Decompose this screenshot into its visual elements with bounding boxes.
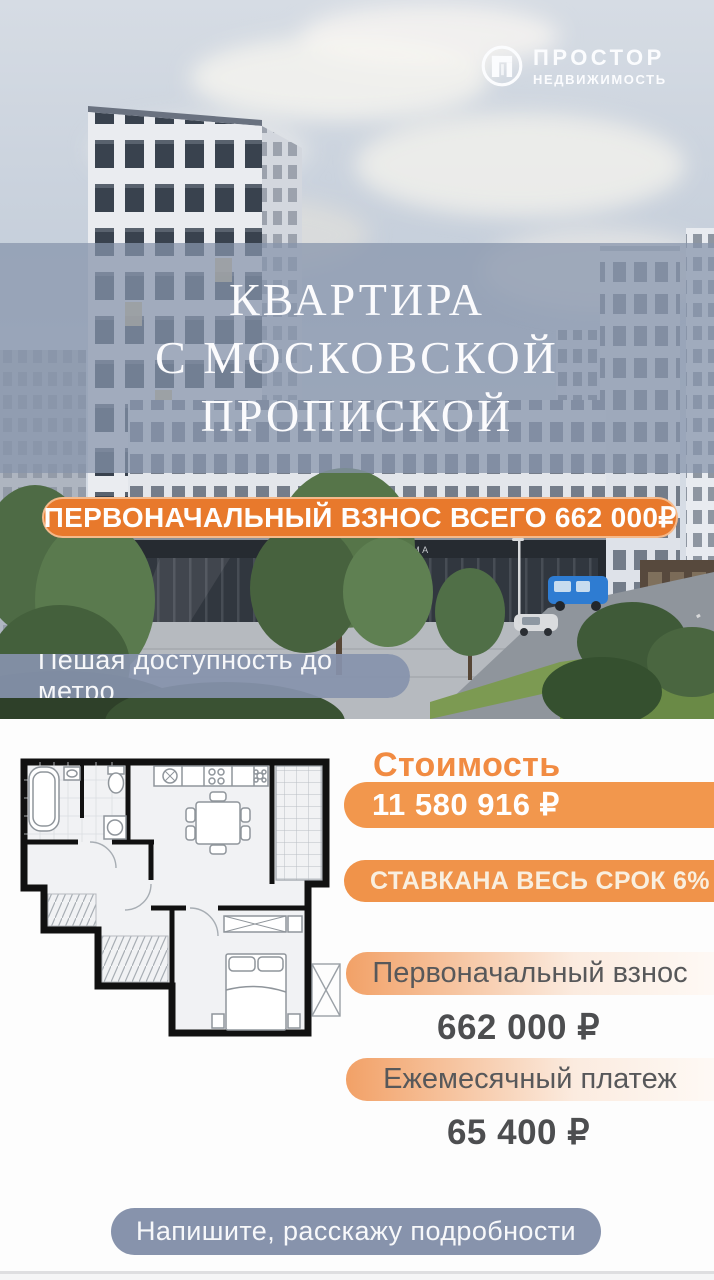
outer-balcony <box>312 964 340 1016</box>
contact-cta-button[interactable]: Напишите, расскажу подробности <box>111 1208 601 1255</box>
ad-page: ТОВАРЫ ДЛЯ ДОМА <box>0 0 714 1280</box>
down-payment-label: Первоначальный взнос <box>346 952 714 995</box>
hero-section: ТОВАРЫ ДЛЯ ДОМА <box>0 0 714 719</box>
details-sheet: Стоимость 11 580 916 ₽ СТАВКАНА ВЕСЬ СРО… <box>0 719 714 1280</box>
logo-title: ПРОСТОР <box>533 47 667 69</box>
hall-wardrobe <box>48 894 96 926</box>
floor-plan <box>20 758 345 1045</box>
logo-subtitle: НЕДВИЖИМОСТЬ <box>533 73 667 86</box>
balcony <box>276 766 322 880</box>
logo-doorframe-icon <box>480 44 524 88</box>
monthly-payment-value: 65 400 ₽ <box>346 1113 691 1153</box>
hero-title-line1: КВАРТИРА <box>155 271 559 329</box>
title-band: КВАРТИРА С МОСКОВСКОЙ ПРОПИСКОЙ <box>0 243 714 473</box>
down-payment-value: 662 000 ₽ <box>346 1008 691 1048</box>
hero-title: КВАРТИРА С МОСКОВСКОЙ ПРОПИСКОЙ <box>155 271 559 445</box>
metro-badge-label: Пешая доступность до метро <box>38 654 410 698</box>
bottom-strip <box>0 1274 714 1280</box>
down-payment-banner: ПЕРВОНАЧАЛЬНЫЙ ВЗНОС ВСЕГО 662 000₽ <box>42 497 678 538</box>
hero-title-line3: ПРОПИСКОЙ <box>155 387 559 445</box>
rate-badge: СТАВКАНА ВЕСЬ СРОК 6% <box>344 860 714 902</box>
hall-wardrobe-2 <box>102 936 168 982</box>
monthly-payment-label: Ежемесячный платеж <box>346 1058 714 1101</box>
hero-title-line2: С МОСКОВСКОЙ <box>155 329 559 387</box>
brand-logo: ПРОСТОР НЕДВИЖИМОСТЬ <box>480 44 667 88</box>
metro-badge: Пешая доступность до метро <box>0 654 410 698</box>
price-value-pill: 11 580 916 ₽ <box>344 782 714 828</box>
price-heading: Стоимость <box>373 746 561 785</box>
